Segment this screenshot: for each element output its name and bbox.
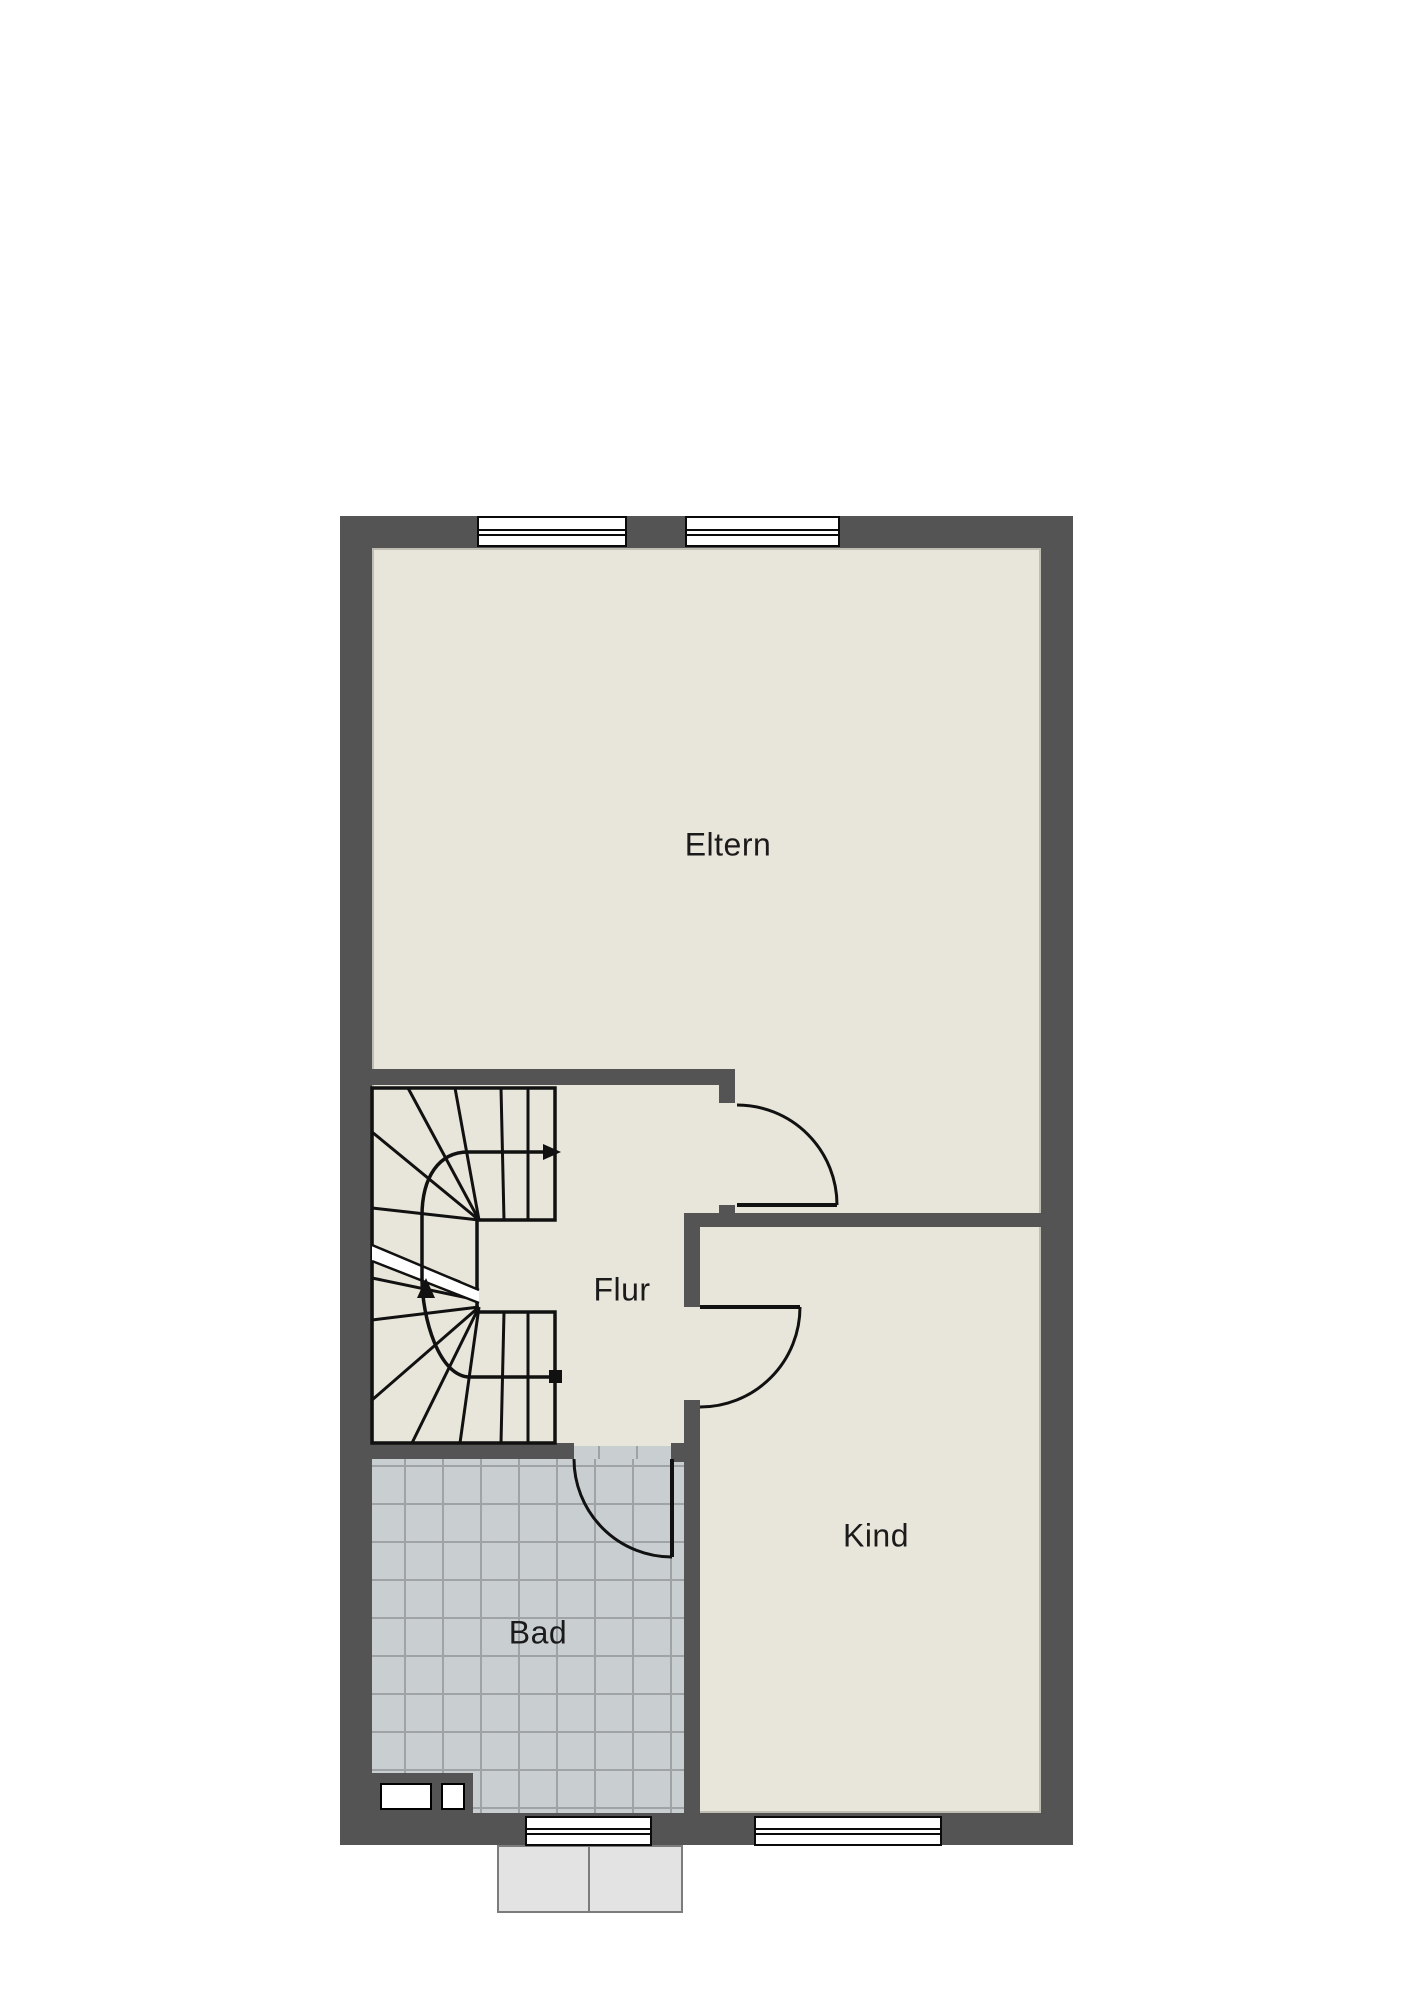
washbasin-symbol <box>380 1783 432 1810</box>
wall-flur-kind-vertical-upper <box>684 1227 700 1307</box>
wall-flur-kind-vertical-lower <box>684 1400 700 1444</box>
small-fixture-symbol <box>441 1783 465 1810</box>
window-glass-line <box>687 534 838 536</box>
window-bottom-left <box>525 1816 652 1846</box>
window-top-right <box>685 516 840 547</box>
wall-eltern-door-jamb-top <box>719 1085 735 1103</box>
floorplan-canvas: Eltern Flur Kind Bad <box>340 516 1073 1845</box>
wall-bad-door-jamb <box>671 1443 685 1462</box>
window-glass-line <box>479 534 625 536</box>
room-label-flur: Flur <box>593 1272 650 1309</box>
page: { "document": { "type": "floor-plan", "f… <box>0 0 1413 2000</box>
wall-flur-kind-horizontal <box>684 1213 1041 1227</box>
room-label-kind: Kind <box>843 1518 909 1555</box>
window-glass-line <box>756 1833 940 1835</box>
wall-eltern-flur <box>372 1069 735 1085</box>
window-glass-line <box>687 529 838 531</box>
window-glass-line <box>527 1828 650 1830</box>
bad-shaft-block <box>372 1773 473 1813</box>
window-glass-line <box>527 1833 650 1835</box>
window-bottom-right <box>754 1816 942 1846</box>
exterior-wall <box>340 516 1073 1845</box>
room-label-eltern: Eltern <box>685 827 772 864</box>
window-top-left <box>477 516 627 547</box>
wall-bad-kind <box>684 1443 700 1813</box>
porch-outline <box>497 1845 683 1913</box>
room-label-bad: Bad <box>509 1615 567 1652</box>
wall-stair-bad <box>372 1443 574 1459</box>
porch-divider <box>588 1847 590 1911</box>
window-glass-line <box>756 1828 940 1830</box>
window-glass-line <box>479 529 625 531</box>
